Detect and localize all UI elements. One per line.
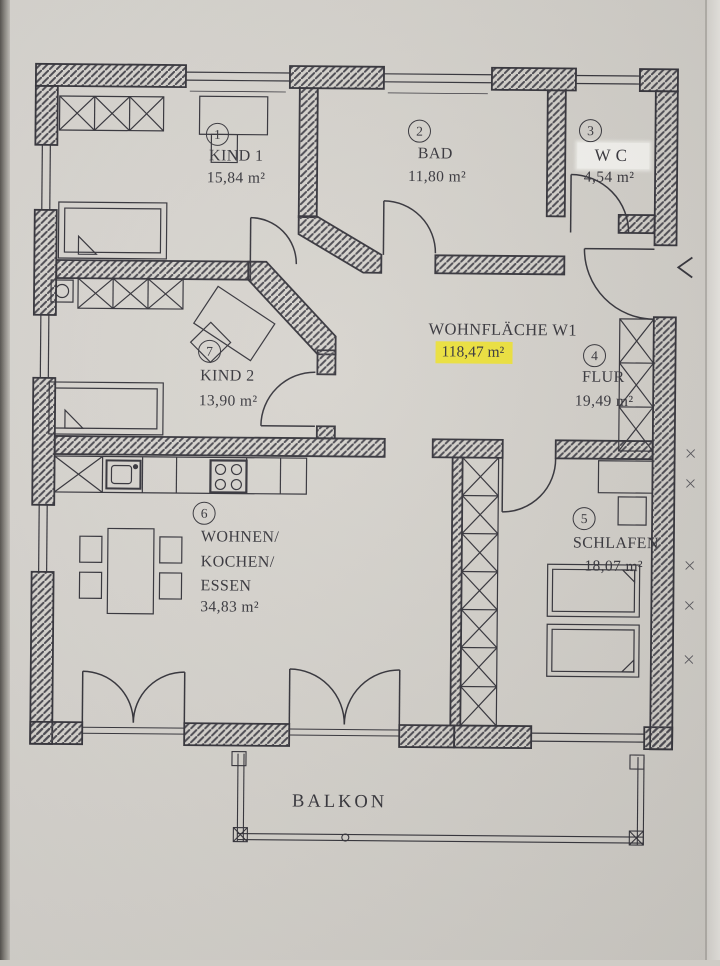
kitchen-counter <box>54 456 306 494</box>
room-number-bad: 2 <box>408 120 431 143</box>
room-area-wc: 4,54 m² <box>584 169 635 187</box>
paper-edge-right <box>707 0 720 960</box>
window-kind1-left <box>35 145 58 210</box>
room-label-wohnen-line1: WOHNEN/ <box>201 528 279 547</box>
kind2-bed <box>49 382 163 435</box>
dining-chair <box>79 572 101 598</box>
window-wc-top <box>576 69 640 92</box>
floorplan: 1 KIND 1 15,84 m² 2 BAD 11,80 m² 3 WC 4,… <box>0 0 720 966</box>
room-number-wohnen: 6 <box>193 502 216 525</box>
door-bad <box>383 201 435 255</box>
room-area-bad: 11,80 m² <box>408 168 466 187</box>
room-area-schlafen: 18,07 m² <box>584 558 643 577</box>
dining-set <box>79 528 182 614</box>
room-number-kind1: 1 <box>206 123 229 146</box>
total-area-highlight: 118,47 m² <box>435 341 512 364</box>
kind1-wardrobe <box>59 96 163 131</box>
dining-table <box>107 528 154 613</box>
room-label-wohnen-line2: KOCHEN/ <box>201 553 275 572</box>
door-schlafen <box>502 458 555 512</box>
room-number-flur: 4 <box>583 344 606 367</box>
room-label-wc: WC <box>594 146 632 166</box>
interior-walls <box>52 86 656 727</box>
room-area-flur: 19,49 m² <box>575 393 634 412</box>
kind2-furniture <box>49 278 275 436</box>
kitchen-sink <box>106 460 140 488</box>
balcony-doors-left <box>82 671 185 734</box>
window-schlafen-bottom <box>531 726 644 749</box>
window-kind2-left <box>33 315 56 378</box>
balcony-label: BALKON <box>292 792 387 814</box>
room-number-kind2: 7 <box>198 340 221 363</box>
dining-chair <box>80 536 102 562</box>
balcony-post <box>630 755 644 769</box>
dimension-ticks <box>685 449 695 663</box>
room-area-kind2: 13,90 m² <box>199 392 258 411</box>
door-kind2 <box>261 372 315 426</box>
room-label-bad: BAD <box>418 145 453 163</box>
window-kind1-top <box>186 65 290 92</box>
balcony-doors-right <box>289 669 400 736</box>
entrance-marker <box>678 257 692 277</box>
room-number-schlafen: 5 <box>573 507 596 530</box>
room-area-kind1: 15,84 m² <box>207 169 266 188</box>
schlafen-nightstand <box>618 497 646 525</box>
total-area-label: WOHNFLÄCHE W1 <box>428 319 577 340</box>
dining-chair <box>159 573 181 599</box>
room-label-schlafen: SCHLAFEN <box>573 534 659 553</box>
floorplan-photo: 1 KIND 1 15,84 m² 2 BAD 11,80 m² 3 WC 4,… <box>0 0 720 960</box>
schlafen-closet <box>598 461 652 493</box>
room-number-wc: 3 <box>579 119 602 142</box>
window-wohnen-left <box>32 505 55 572</box>
room-label-kind1: KIND 1 <box>209 147 264 165</box>
room-label-kind2: KIND 2 <box>200 367 255 385</box>
room-area-wohnen: 34,83 m² <box>200 598 259 617</box>
entrance-door <box>584 249 655 320</box>
dining-chair <box>160 537 182 563</box>
kind2-wardrobe <box>78 278 183 309</box>
kitchen-stove <box>210 460 246 492</box>
paper-edge-left <box>0 0 10 960</box>
schlafen-bed-2 <box>547 624 639 677</box>
kitchen <box>54 456 306 494</box>
chimney-shaft <box>460 458 498 726</box>
kind1-bed <box>58 202 166 259</box>
door-kind1 <box>250 218 296 264</box>
window-bad-top <box>384 67 492 94</box>
room-label-flur: FLUR <box>582 369 625 387</box>
room-label-wohnen-line3: ESSEN <box>200 577 251 595</box>
